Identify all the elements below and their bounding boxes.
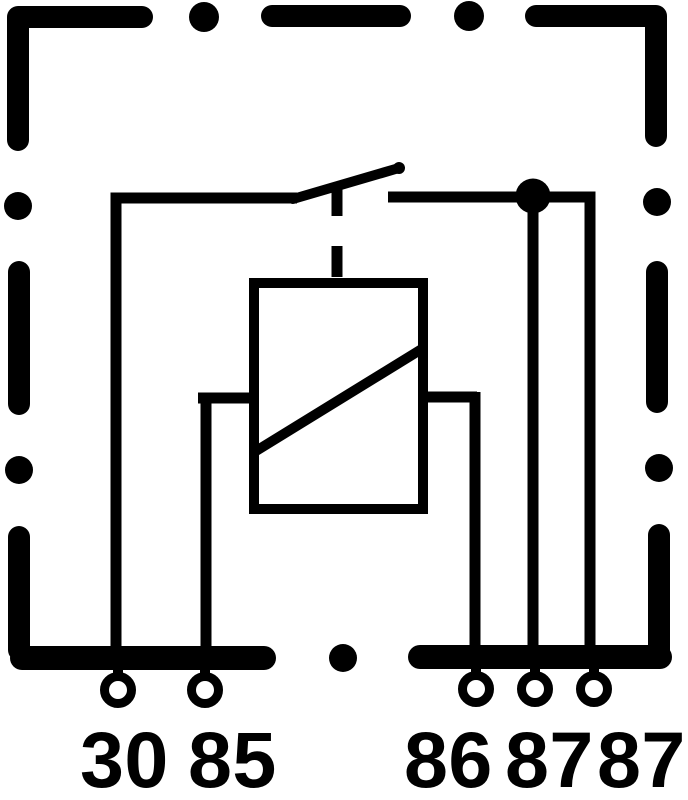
border-corner-top-right: [536, 16, 656, 136]
relay-diagram: 30 85 86 87 87: [0, 0, 688, 800]
terminal-label-87a: 87: [505, 720, 594, 799]
pin-85: [192, 677, 219, 704]
border-dot-right-2: [645, 454, 673, 482]
terminal-label-86: 86: [404, 720, 493, 799]
border-dot-top-1: [189, 2, 219, 32]
border-dot-top-2: [454, 1, 484, 31]
pin-86: [463, 676, 490, 703]
border-dot-right-1: [643, 188, 671, 216]
junction-dot: [516, 179, 551, 214]
pin-87a: [522, 676, 549, 703]
terminal-label-85: 85: [188, 720, 277, 799]
border-dot-left-2: [5, 456, 33, 484]
terminal-label-30: 30: [80, 720, 169, 799]
switch-blade-tip: [393, 162, 405, 174]
pin-30: [105, 677, 132, 704]
pin-87b: [581, 676, 608, 703]
switch-blade: [293, 168, 399, 199]
terminal-label-87b: 87: [597, 720, 686, 799]
border-dot-bottom: [329, 644, 357, 672]
border-corner-top-left: [18, 17, 142, 140]
border-dot-left-1: [4, 192, 32, 220]
relay-circuit: [116, 162, 590, 652]
schematic-canvas: [0, 0, 688, 800]
